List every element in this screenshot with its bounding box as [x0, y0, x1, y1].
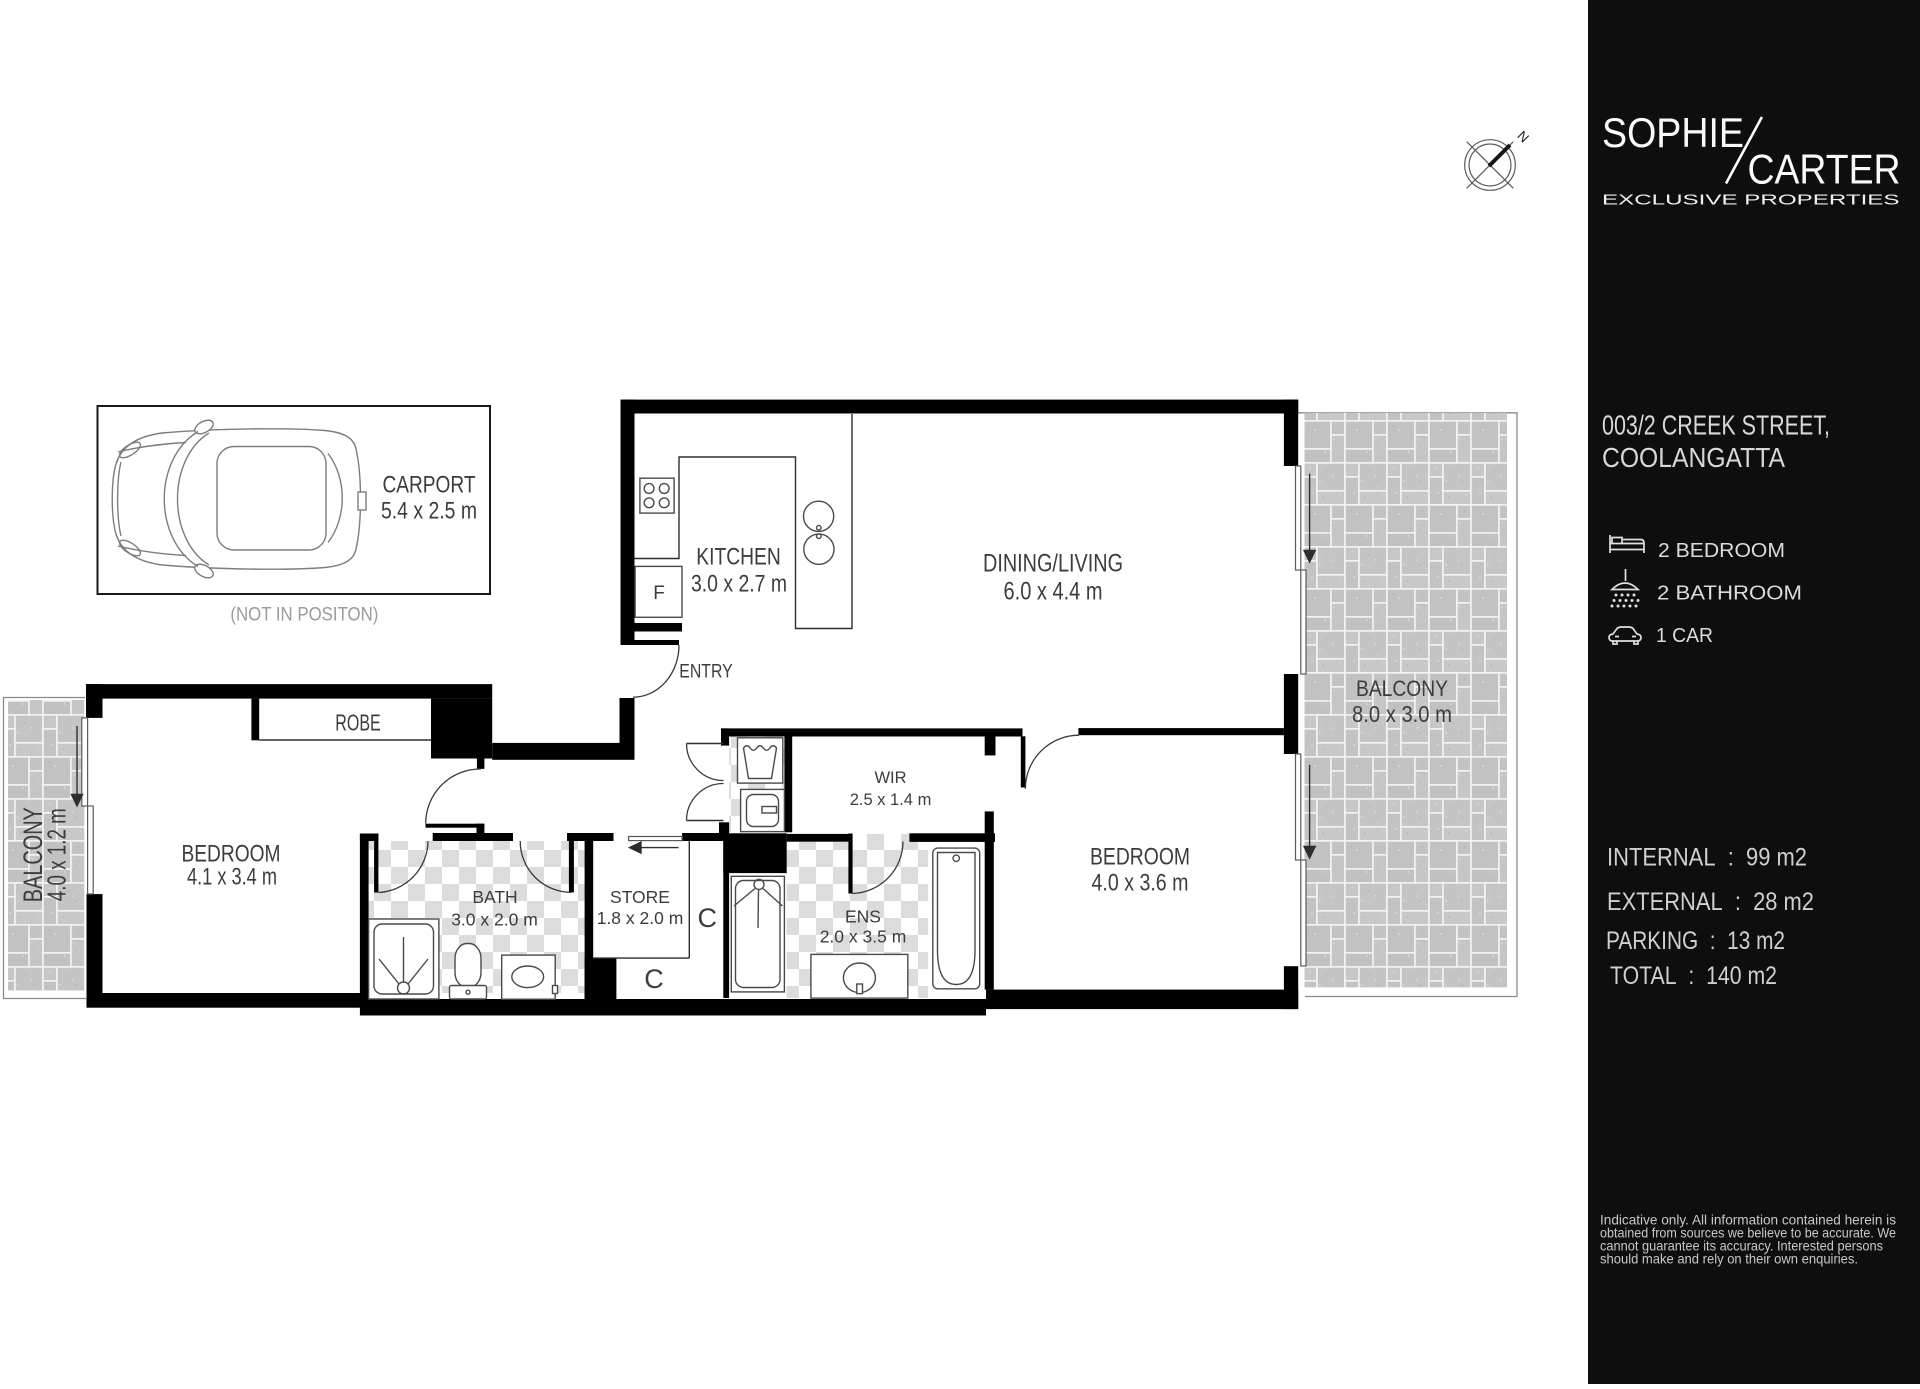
svg-text:should make and rely on their: should make and rely on their own enquir…	[1600, 1252, 1858, 1267]
svg-text:2 BEDROOM: 2 BEDROOM	[1658, 539, 1785, 562]
svg-text:3.0 x 2.7 m: 3.0 x 2.7 m	[691, 571, 787, 598]
svg-text:CARTER: CARTER	[1748, 146, 1901, 193]
svg-text:2.5 x 1.4 m: 2.5 x 1.4 m	[850, 791, 932, 809]
svg-text:(NOT IN POSITON): (NOT IN POSITON)	[230, 605, 378, 626]
svg-text:INTERNAL : 99 m2: INTERNAL : 99 m2	[1607, 844, 1807, 872]
svg-text:CARPORT: CARPORT	[383, 472, 476, 499]
svg-text:KITCHEN: KITCHEN	[696, 544, 781, 571]
svg-text:BALCONY: BALCONY	[1356, 676, 1448, 701]
svg-text:DINING/LIVING: DINING/LIVING	[983, 550, 1123, 578]
svg-text:1.8 x 2.0 m: 1.8 x 2.0 m	[597, 908, 684, 928]
svg-text:C: C	[644, 964, 664, 994]
svg-text:TOTAL : 140 m2: TOTAL : 140 m2	[1610, 962, 1777, 990]
svg-text:STORE: STORE	[610, 887, 670, 907]
svg-text:3.0 x 2.0 m: 3.0 x 2.0 m	[451, 910, 538, 930]
svg-text:2 BATHROOM: 2 BATHROOM	[1657, 582, 1802, 605]
svg-text:EXCLUSIVE PROPERTIES: EXCLUSIVE PROPERTIES	[1602, 192, 1900, 208]
svg-text:F: F	[653, 583, 665, 604]
svg-text:BATH: BATH	[472, 887, 517, 907]
svg-text:5.4 x 2.5 m: 5.4 x 2.5 m	[381, 498, 477, 525]
svg-text:COOLANGATTA: COOLANGATTA	[1602, 442, 1786, 473]
svg-text:BEDROOM: BEDROOM	[1090, 844, 1190, 871]
svg-text:003/2 CREEK STREET,: 003/2 CREEK STREET,	[1602, 410, 1830, 441]
svg-text:EXTERNAL : 28 m2: EXTERNAL : 28 m2	[1607, 888, 1814, 916]
svg-text:PARKING : 13 m2: PARKING : 13 m2	[1606, 927, 1785, 955]
svg-text:N: N	[1514, 128, 1532, 146]
svg-text:4.1 x 3.4 m: 4.1 x 3.4 m	[187, 864, 277, 891]
svg-text:ROBE: ROBE	[335, 710, 381, 736]
svg-text:1 CAR: 1 CAR	[1656, 624, 1713, 647]
svg-text:ENTRY: ENTRY	[679, 662, 733, 683]
svg-text:ENS: ENS	[845, 906, 881, 926]
svg-text:8.0 x 3.0 m: 8.0 x 3.0 m	[1352, 701, 1452, 727]
svg-text:2.0 x 3.5 m: 2.0 x 3.5 m	[820, 927, 907, 947]
svg-text:SOPHIE: SOPHIE	[1602, 109, 1744, 156]
svg-text:6.0 x 4.4 m: 6.0 x 4.4 m	[1004, 578, 1103, 606]
svg-text:4.0 x 1.2 m: 4.0 x 1.2 m	[42, 808, 72, 901]
svg-text:4.0 x 3.6 m: 4.0 x 3.6 m	[1092, 870, 1189, 897]
svg-text:WIR: WIR	[874, 769, 906, 787]
svg-text:C: C	[698, 903, 718, 933]
